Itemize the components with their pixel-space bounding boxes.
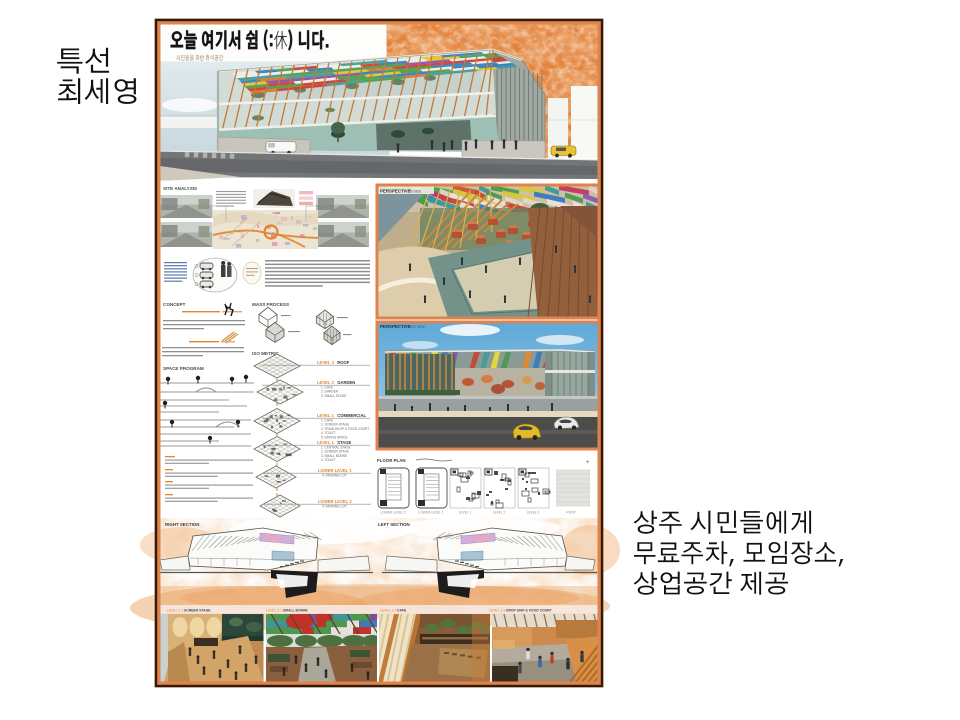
svg-text:FLOOR PLAN: FLOOR PLAN [377,458,406,463]
svg-text:SCREEN STAGE: SCREEN STAGE [184,609,211,613]
svg-text:LEVEL 2: LEVEL 2 [493,511,506,515]
svg-text:ROOF: ROOF [566,511,575,515]
svg-text:LEFT SECTION: LEFT SECTION [378,522,410,527]
svg-text:LEVEL 2: LEVEL 2 [317,380,335,385]
svg-text:LEVEL 2-1: LEVEL 2-1 [266,609,282,613]
svg-text:STAGE: STAGE [337,440,351,445]
svg-text:SPACE PROGRAM: SPACE PROGRAM [163,366,204,371]
svg-text:LEVEL 1-1: LEVEL 1-1 [167,609,183,613]
svg-text:RIGHT SECTION: RIGHT SECTION [165,522,199,527]
svg-text:PERSPECTIVE: PERSPECTIVE [380,324,411,329]
svg-text:CAFE: CAFE [397,609,407,613]
svg-text:3. SMALL STAGE: 3. SMALL STAGE [321,394,346,398]
svg-text:LOWER LEVEL 1: LOWER LEVEL 1 [418,511,443,515]
svg-text:4. PARKING LOT: 4. PARKING LOT [322,474,347,478]
svg-text:COMMERCIAL: COMMERCIAL [337,413,366,418]
svg-text:IN SIDE: IN SIDE [409,189,422,193]
svg-text:OUT SIDE: OUT SIDE [409,325,426,329]
svg-text:LEVEL 1: LEVEL 1 [317,440,335,445]
svg-text:SITE ANALYSIS: SITE ANALYSIS [163,186,197,191]
svg-text:4. PARKING LOT: 4. PARKING LOT [322,505,347,509]
svg-text:LEVEL 1: LEVEL 1 [317,413,335,418]
svg-text:LEVEL 1-2: LEVEL 1-2 [380,609,396,613]
svg-text:LOWER LEVEL 1: LOWER LEVEL 1 [318,468,352,473]
svg-text:4. TOILET: 4. TOILET [321,458,336,462]
svg-text:LOWER LEVEL 2: LOWER LEVEL 2 [318,499,352,504]
svg-text:ROOF: ROOF [337,360,350,365]
svg-text:GARDEN: GARDEN [337,380,355,385]
svg-text:SMALL BONRE: SMALL BONRE [283,609,309,613]
svg-text:LEVEL 1: LEVEL 1 [459,511,472,515]
svg-text:LEVEL 3: LEVEL 3 [317,360,335,365]
svg-text:CONCEPT: CONCEPT [163,302,186,307]
svg-text:LOWER LEVEL 2: LOWER LEVEL 2 [380,511,405,515]
svg-text:MASS PROCESS: MASS PROCESS [252,302,289,307]
svg-text:+: + [586,460,590,466]
svg-text:5. EATING SPACE: 5. EATING SPACE [321,435,348,439]
svg-text:DROP SHIP & FOOD COURT: DROP SHIP & FOOD COURT [506,609,553,613]
svg-text:LEVEL 3: LEVEL 3 [527,511,540,515]
svg-text:PERSPECTIVE: PERSPECTIVE [380,188,411,193]
svg-text:LEVEL 1-3: LEVEL 1-3 [489,609,505,613]
